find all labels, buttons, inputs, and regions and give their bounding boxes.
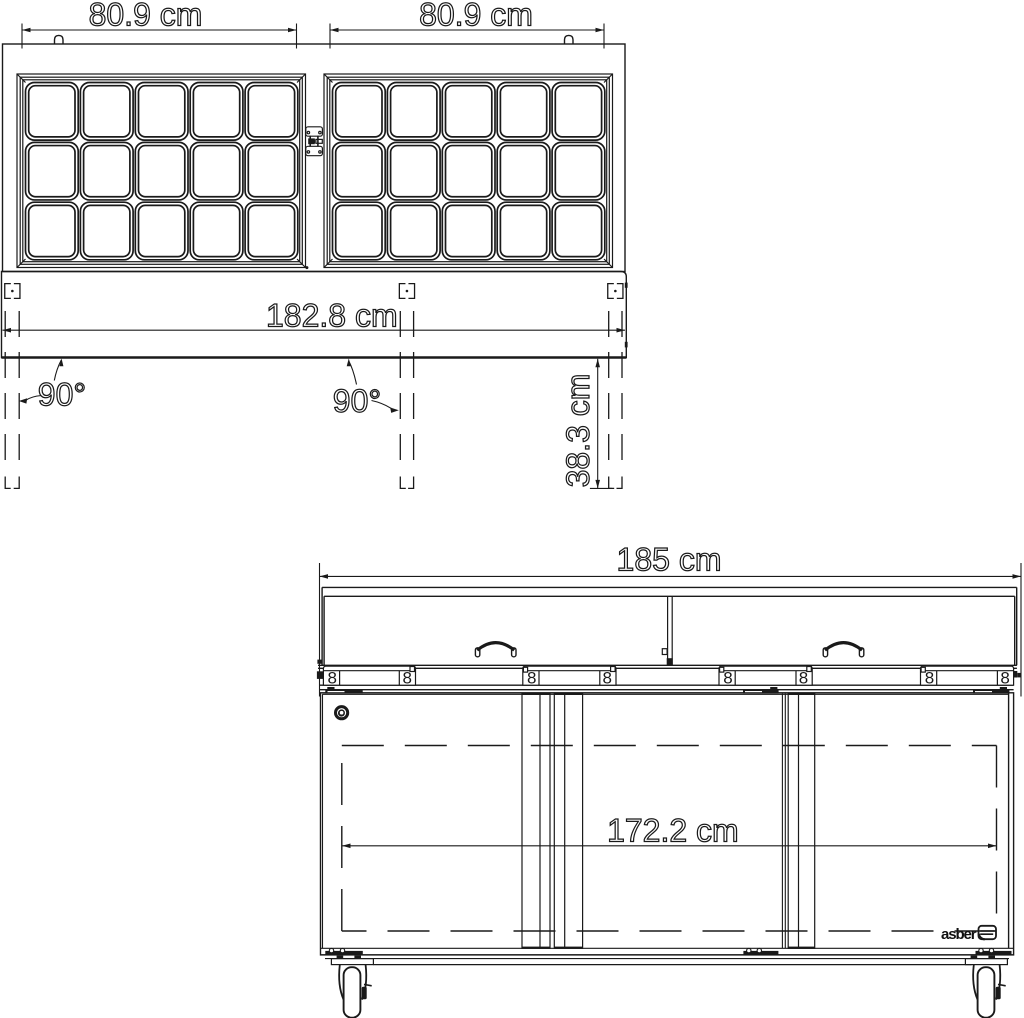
svg-text:8: 8 [403, 669, 412, 688]
svg-text:8: 8 [328, 669, 337, 688]
svg-text:8: 8 [925, 669, 934, 688]
svg-text:8: 8 [723, 669, 732, 688]
svg-text:90°: 90° [333, 383, 381, 419]
svg-text:8: 8 [527, 669, 536, 688]
svg-text:185 cm: 185 cm [617, 542, 722, 578]
svg-text:8: 8 [799, 669, 808, 688]
svg-text:182.8 cm: 182.8 cm [266, 297, 398, 333]
svg-text:80.9 cm: 80.9 cm [89, 0, 203, 33]
svg-text:38.3 cm: 38.3 cm [560, 374, 596, 488]
svg-text:8: 8 [1000, 669, 1009, 688]
svg-text:asber: asber [941, 926, 977, 943]
svg-text:8: 8 [603, 669, 612, 688]
svg-text:90°: 90° [38, 377, 86, 413]
svg-text:172.2 cm: 172.2 cm [607, 813, 739, 849]
svg-text:80.9 cm: 80.9 cm [419, 0, 533, 33]
